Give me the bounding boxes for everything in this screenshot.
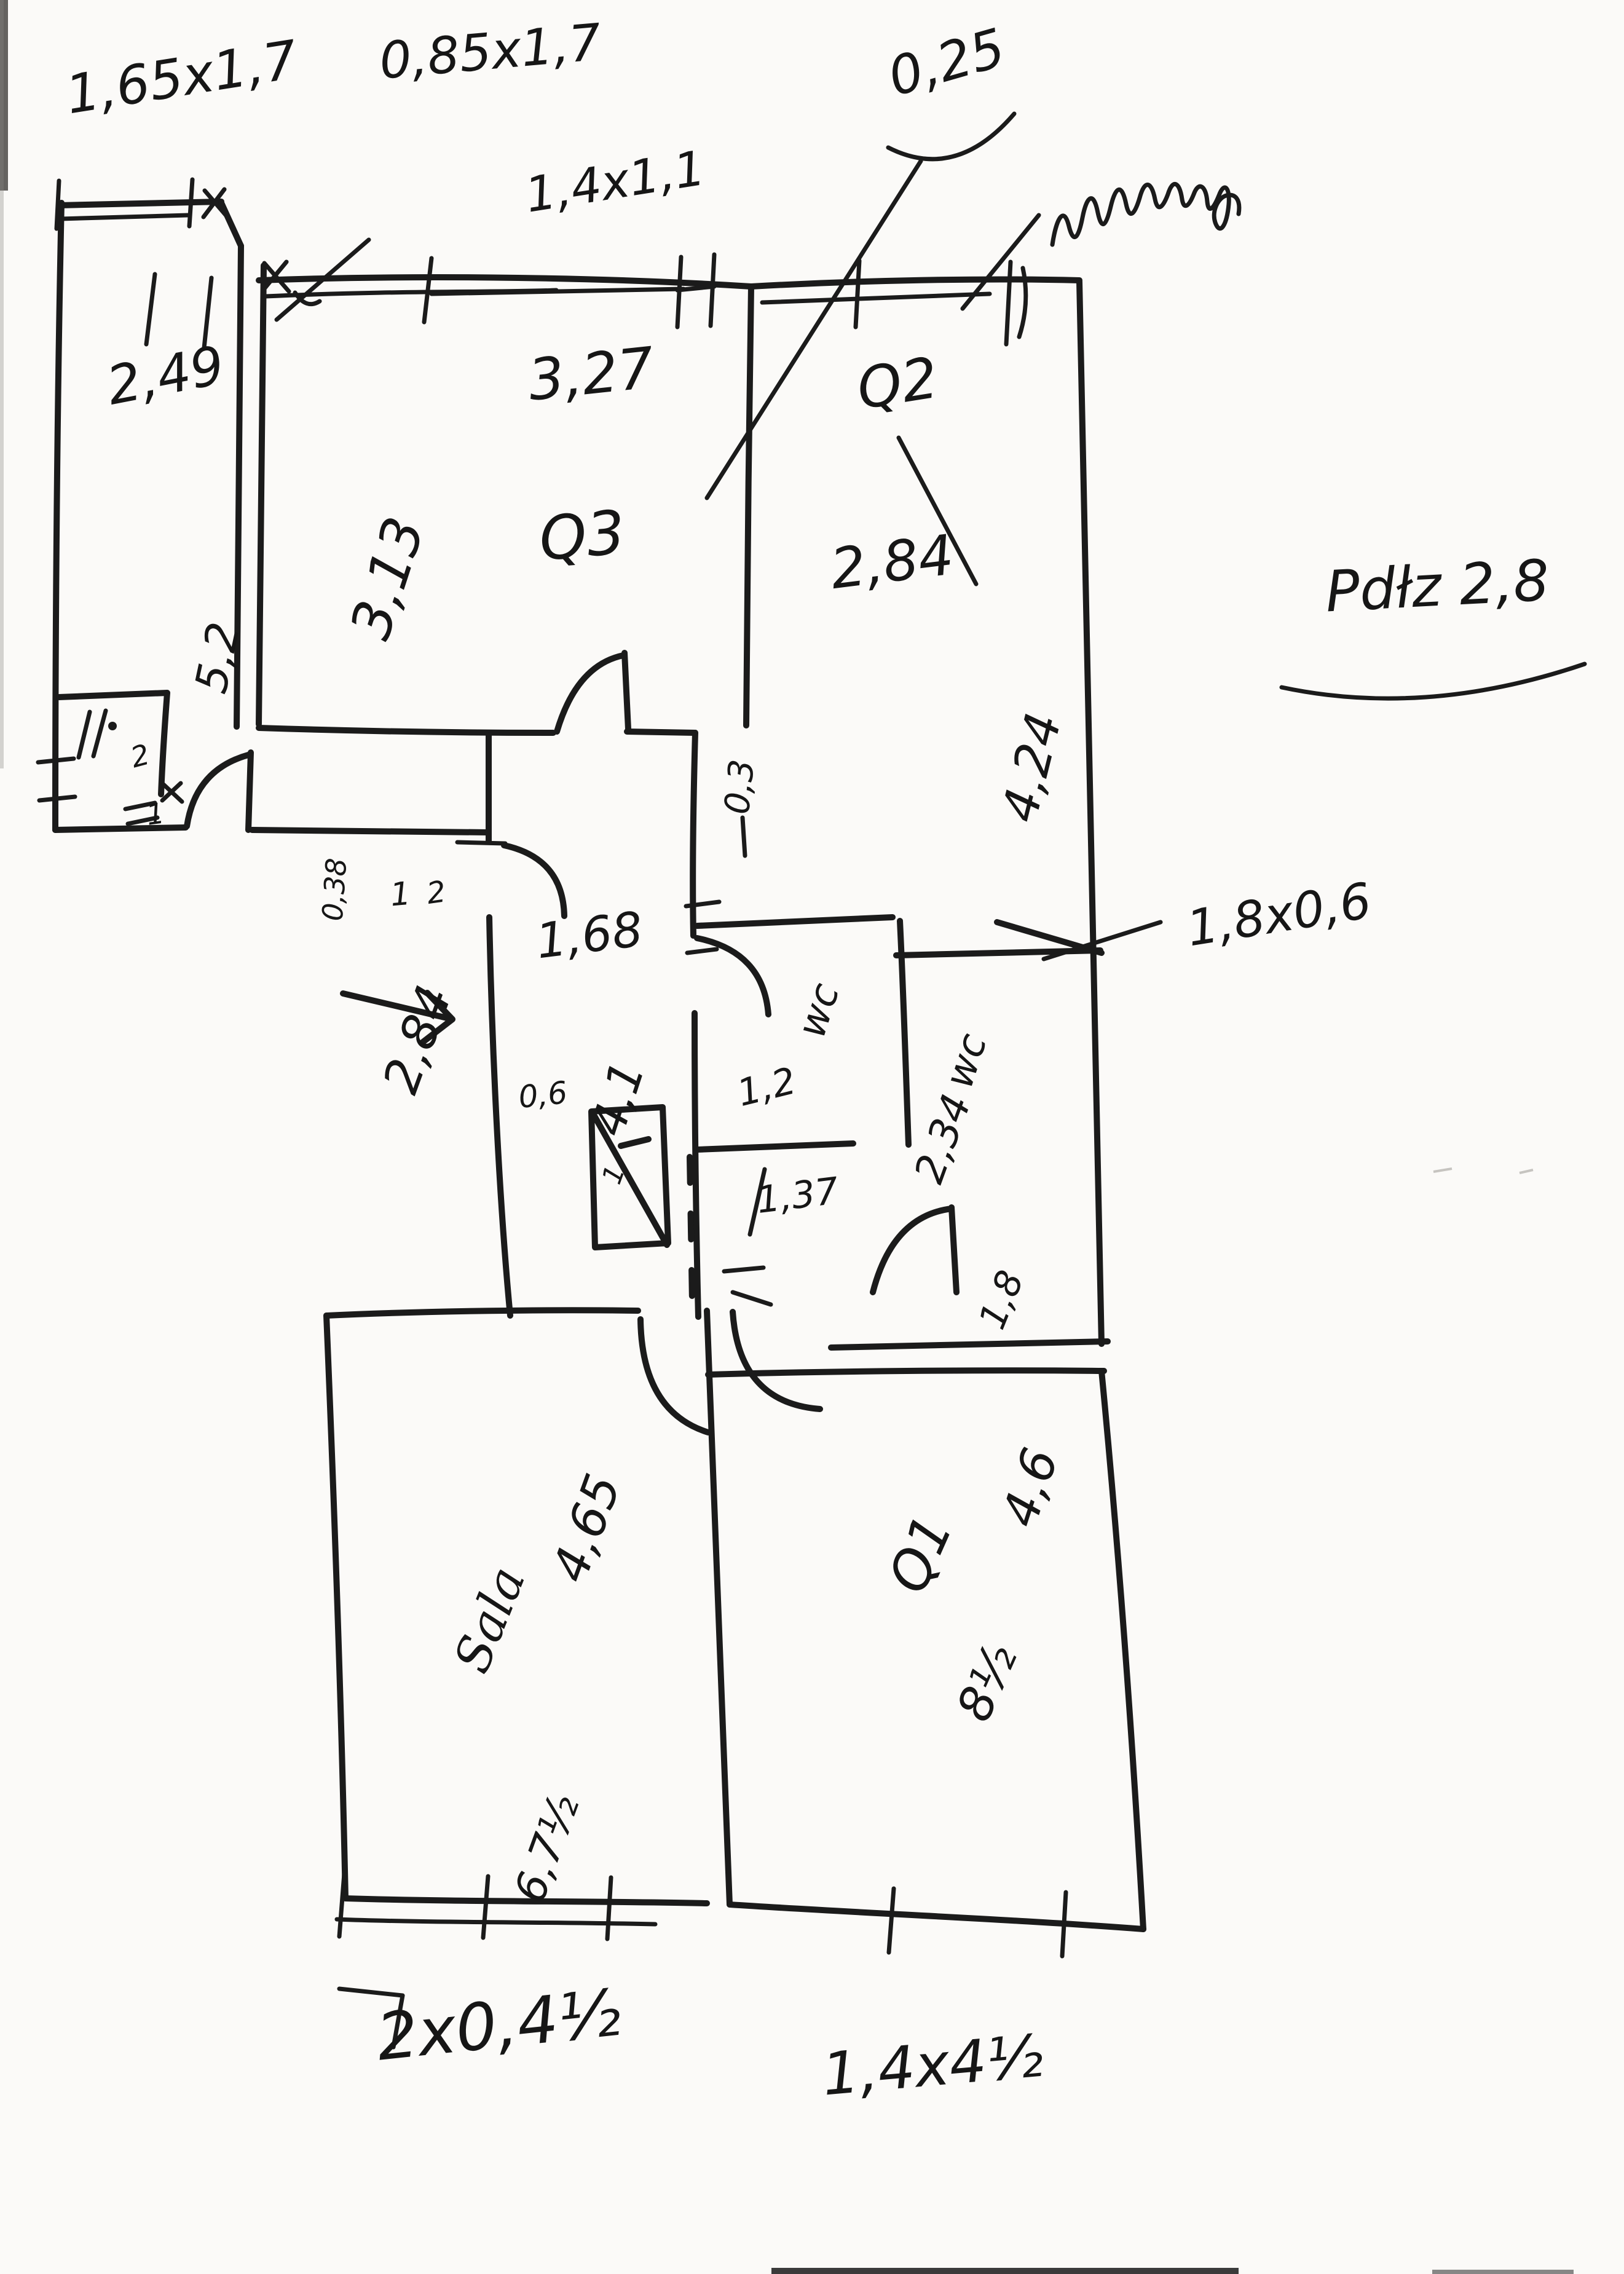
wall-tl-top (59, 202, 221, 205)
window-slashes-tl (146, 274, 211, 348)
wall-corridor-left (489, 735, 510, 1316)
annex-walls (59, 693, 167, 794)
label-q3-height: 3,13 (338, 510, 438, 647)
wall-wc1-top (697, 917, 893, 926)
wall-divider-sala-q1 (707, 1311, 730, 1905)
scan-edge-bottom-2 (1432, 2270, 1574, 2274)
wall-sala-left (326, 1316, 345, 1898)
label-window-b: 0,85x1,7 (377, 14, 603, 91)
wall-wc2-bottom (831, 1341, 1108, 1348)
scribble-word-illegible (1052, 184, 1239, 245)
label-wc1-name: wc (789, 977, 848, 1043)
wall-q2-top-double (762, 294, 990, 302)
label-annex: 2 (127, 738, 153, 775)
annex-dot (108, 722, 117, 730)
label-room-tl-height: 5,2 (185, 618, 250, 697)
label-wc1-length: 1,37 (754, 1169, 841, 1222)
wall-right-exterior (1079, 282, 1102, 1344)
dim-line-tl-top (60, 215, 188, 219)
wall-divider-q3-q2 (746, 286, 751, 725)
label-window-d: 0,25 (881, 17, 1012, 109)
label-window-note: 1,8x0,6 (1183, 872, 1375, 957)
door-arc-sala (641, 1319, 708, 1432)
wall-q1-top (708, 1370, 1104, 1375)
annex-door-arc (187, 755, 248, 826)
label-bottom-note-a: 2x0,4½ (373, 1975, 624, 2075)
label-room-tl-width: 2,49 (102, 334, 229, 417)
label-q1-bottom: 8½ (947, 1636, 1028, 1729)
label-sala-name: Sala (443, 1559, 536, 1681)
annex (38, 693, 488, 832)
room-q3 (259, 255, 751, 733)
label-wc2-name: wc (936, 1028, 996, 1093)
label-corridor-height: 4,1 (580, 1055, 655, 1142)
flourish-note-d (888, 114, 1014, 159)
cross-mark (162, 783, 182, 802)
entrance-door-arc (504, 845, 564, 916)
wall-jog (221, 203, 241, 246)
label-q1-name: Q1 (876, 1506, 965, 1601)
pencil-specks (1433, 1169, 1533, 1173)
wall-double-b (259, 266, 264, 724)
label-wall-03: 0,3 (717, 757, 763, 816)
floorplan-sketch: 1,65x1,7 0,85x1,7 1,4x1,1 0,25 Pdłz 2,8 … (0, 0, 1624, 2274)
label-sala-width: 4,65 (541, 1467, 632, 1589)
label-window-a: 1,65x1,7 (61, 29, 301, 126)
scan-edge-left-faint (0, 0, 4, 768)
underline-side-note (1282, 664, 1585, 698)
wall-q3-top (259, 277, 751, 286)
paper-sheet: 1,65x1,7 0,85x1,7 1,4x1,1 0,25 Pdłz 2,8 … (0, 0, 1624, 2274)
label-q2-height: 4,24 (991, 708, 1073, 827)
annex-door-leaf (248, 752, 251, 830)
wall-tl-left (55, 203, 61, 830)
label-q3-name: Q3 (537, 497, 628, 575)
door-arc-q1 (733, 1312, 820, 1409)
wall-q1-right (1102, 1371, 1143, 1929)
window-ticks-sala (339, 1874, 611, 1939)
wall-wc1-bottom (697, 1143, 853, 1150)
label-sala-bottom: 6,7½ (504, 1788, 589, 1909)
label-entrance-2: 2 (425, 874, 448, 911)
wall-q2-top (751, 279, 1079, 286)
wall-q1-bottom (730, 1905, 1143, 1929)
wall-sala-top (326, 1310, 638, 1316)
entrance-stub (457, 842, 505, 843)
leader-note-d (707, 161, 921, 498)
scan-edge-bottom (771, 2268, 1239, 2274)
label-q3-width: 3,27 (525, 335, 657, 414)
label-q2-width: 2,84 (827, 523, 957, 602)
room-q1 (708, 1370, 1143, 1956)
label-ceiling-height: Pdłz 2,8 (1324, 548, 1551, 625)
label-q2-name: Q2 (853, 345, 942, 422)
label-bottom-note-b: 1,4x4½ (819, 2023, 1046, 2109)
door-arc-q3 (557, 655, 623, 732)
dashed-wall-below-wc1 (690, 1157, 692, 1302)
window-ticks-q2 (856, 261, 1026, 344)
label-passage: 0,38 (316, 857, 353, 922)
label-wc2-width: 1,8 (971, 1265, 1033, 1335)
kitchen-bottom-wall (55, 827, 488, 832)
door-leaf-q3 (625, 653, 628, 729)
label-shaft-mark: 1 (596, 1161, 632, 1188)
label-wc2-dim: 2,34 (905, 1088, 981, 1189)
door-wc2 (873, 1207, 956, 1292)
label-q1-height: 4,6 (991, 1442, 1070, 1534)
dash-marks-hall (724, 1268, 771, 1305)
label-window-c: 1,4x1,1 (522, 141, 709, 224)
label-corridor-width: 1,68 (533, 902, 645, 969)
label-entrance-1: 1 (388, 875, 412, 914)
annex-window-ticks (79, 711, 106, 757)
label-wc1-dim: 1,2 (733, 1059, 800, 1115)
label-shaft: 0,6 (517, 1075, 569, 1115)
label-corridor-length: 2,84 (372, 978, 463, 1100)
